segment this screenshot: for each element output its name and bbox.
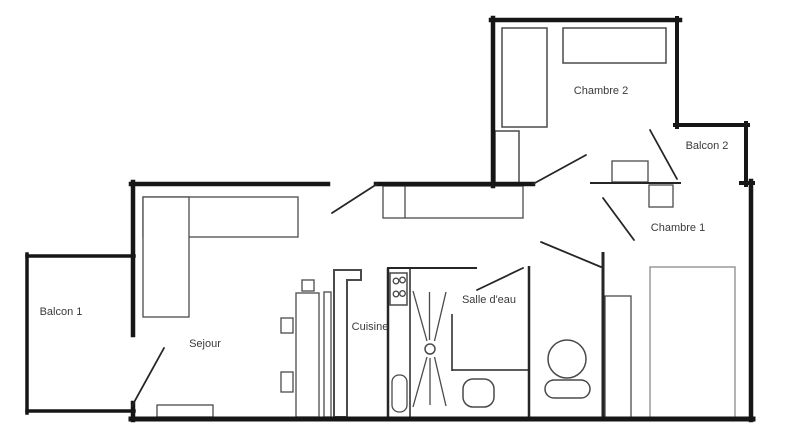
room-label-sejour: Sejour: [189, 338, 221, 350]
washbasin-bowl: [548, 340, 586, 378]
kitchen-sink: [392, 375, 407, 412]
floorplan-page: Balcon 1SejourCuisineSalle d'eauChambre …: [0, 0, 800, 447]
shower-ray-3: [435, 292, 447, 341]
door-balcon2: [650, 130, 677, 179]
room-label-salle-deau: Salle d'eau: [462, 294, 516, 306]
room-label-chambre-1: Chambre 1: [651, 222, 705, 234]
kitchen-counter: [296, 293, 319, 417]
kitchen-box-mid: [281, 318, 293, 333]
chambre1-desk: [612, 161, 648, 182]
chambre1-bed: [650, 267, 735, 418]
door-entry: [332, 184, 377, 213]
hall-sideboard: [383, 186, 523, 218]
door-chambre1: [603, 198, 634, 240]
shower-drain: [425, 344, 435, 354]
stove-burner-4: [400, 291, 406, 297]
stove-burner-2: [400, 277, 406, 283]
door-balcon1: [132, 348, 164, 406]
shower-ray-1: [413, 291, 427, 341]
room-label-balcon-2: Balcon 2: [686, 140, 729, 152]
kitchen-slim-unit: [324, 292, 331, 417]
kitchen-box-low: [281, 372, 293, 392]
room-label-balcon-1: Balcon 1: [40, 306, 83, 318]
chambre2-bed: [502, 28, 547, 127]
chambre2-shelf: [563, 28, 666, 63]
kitchen-box-top: [302, 280, 314, 291]
room-label-cuisine: Cuisine: [352, 321, 389, 333]
shower-ray-6: [435, 357, 447, 406]
door-salle-deau: [477, 268, 523, 290]
door-wc: [541, 242, 601, 267]
chambre1-closet: [605, 296, 631, 418]
shower-ray-4: [413, 357, 427, 407]
room-label-chambre-2: Chambre 2: [574, 85, 628, 97]
toilet: [463, 379, 494, 407]
corridor-wardrobe: [495, 131, 519, 183]
stove-burner-3: [393, 291, 399, 297]
door-chambre2: [533, 155, 586, 184]
stove-burner-1: [393, 278, 399, 284]
washbasin-base: [545, 380, 590, 398]
chambre1-nightstand: [649, 185, 673, 207]
rug: [157, 405, 213, 417]
floorplan-svg: Balcon 1SejourCuisineSalle d'eauChambre …: [0, 0, 800, 447]
kitchen-l-unit: [334, 270, 361, 417]
sofa-chaise: [143, 197, 189, 317]
